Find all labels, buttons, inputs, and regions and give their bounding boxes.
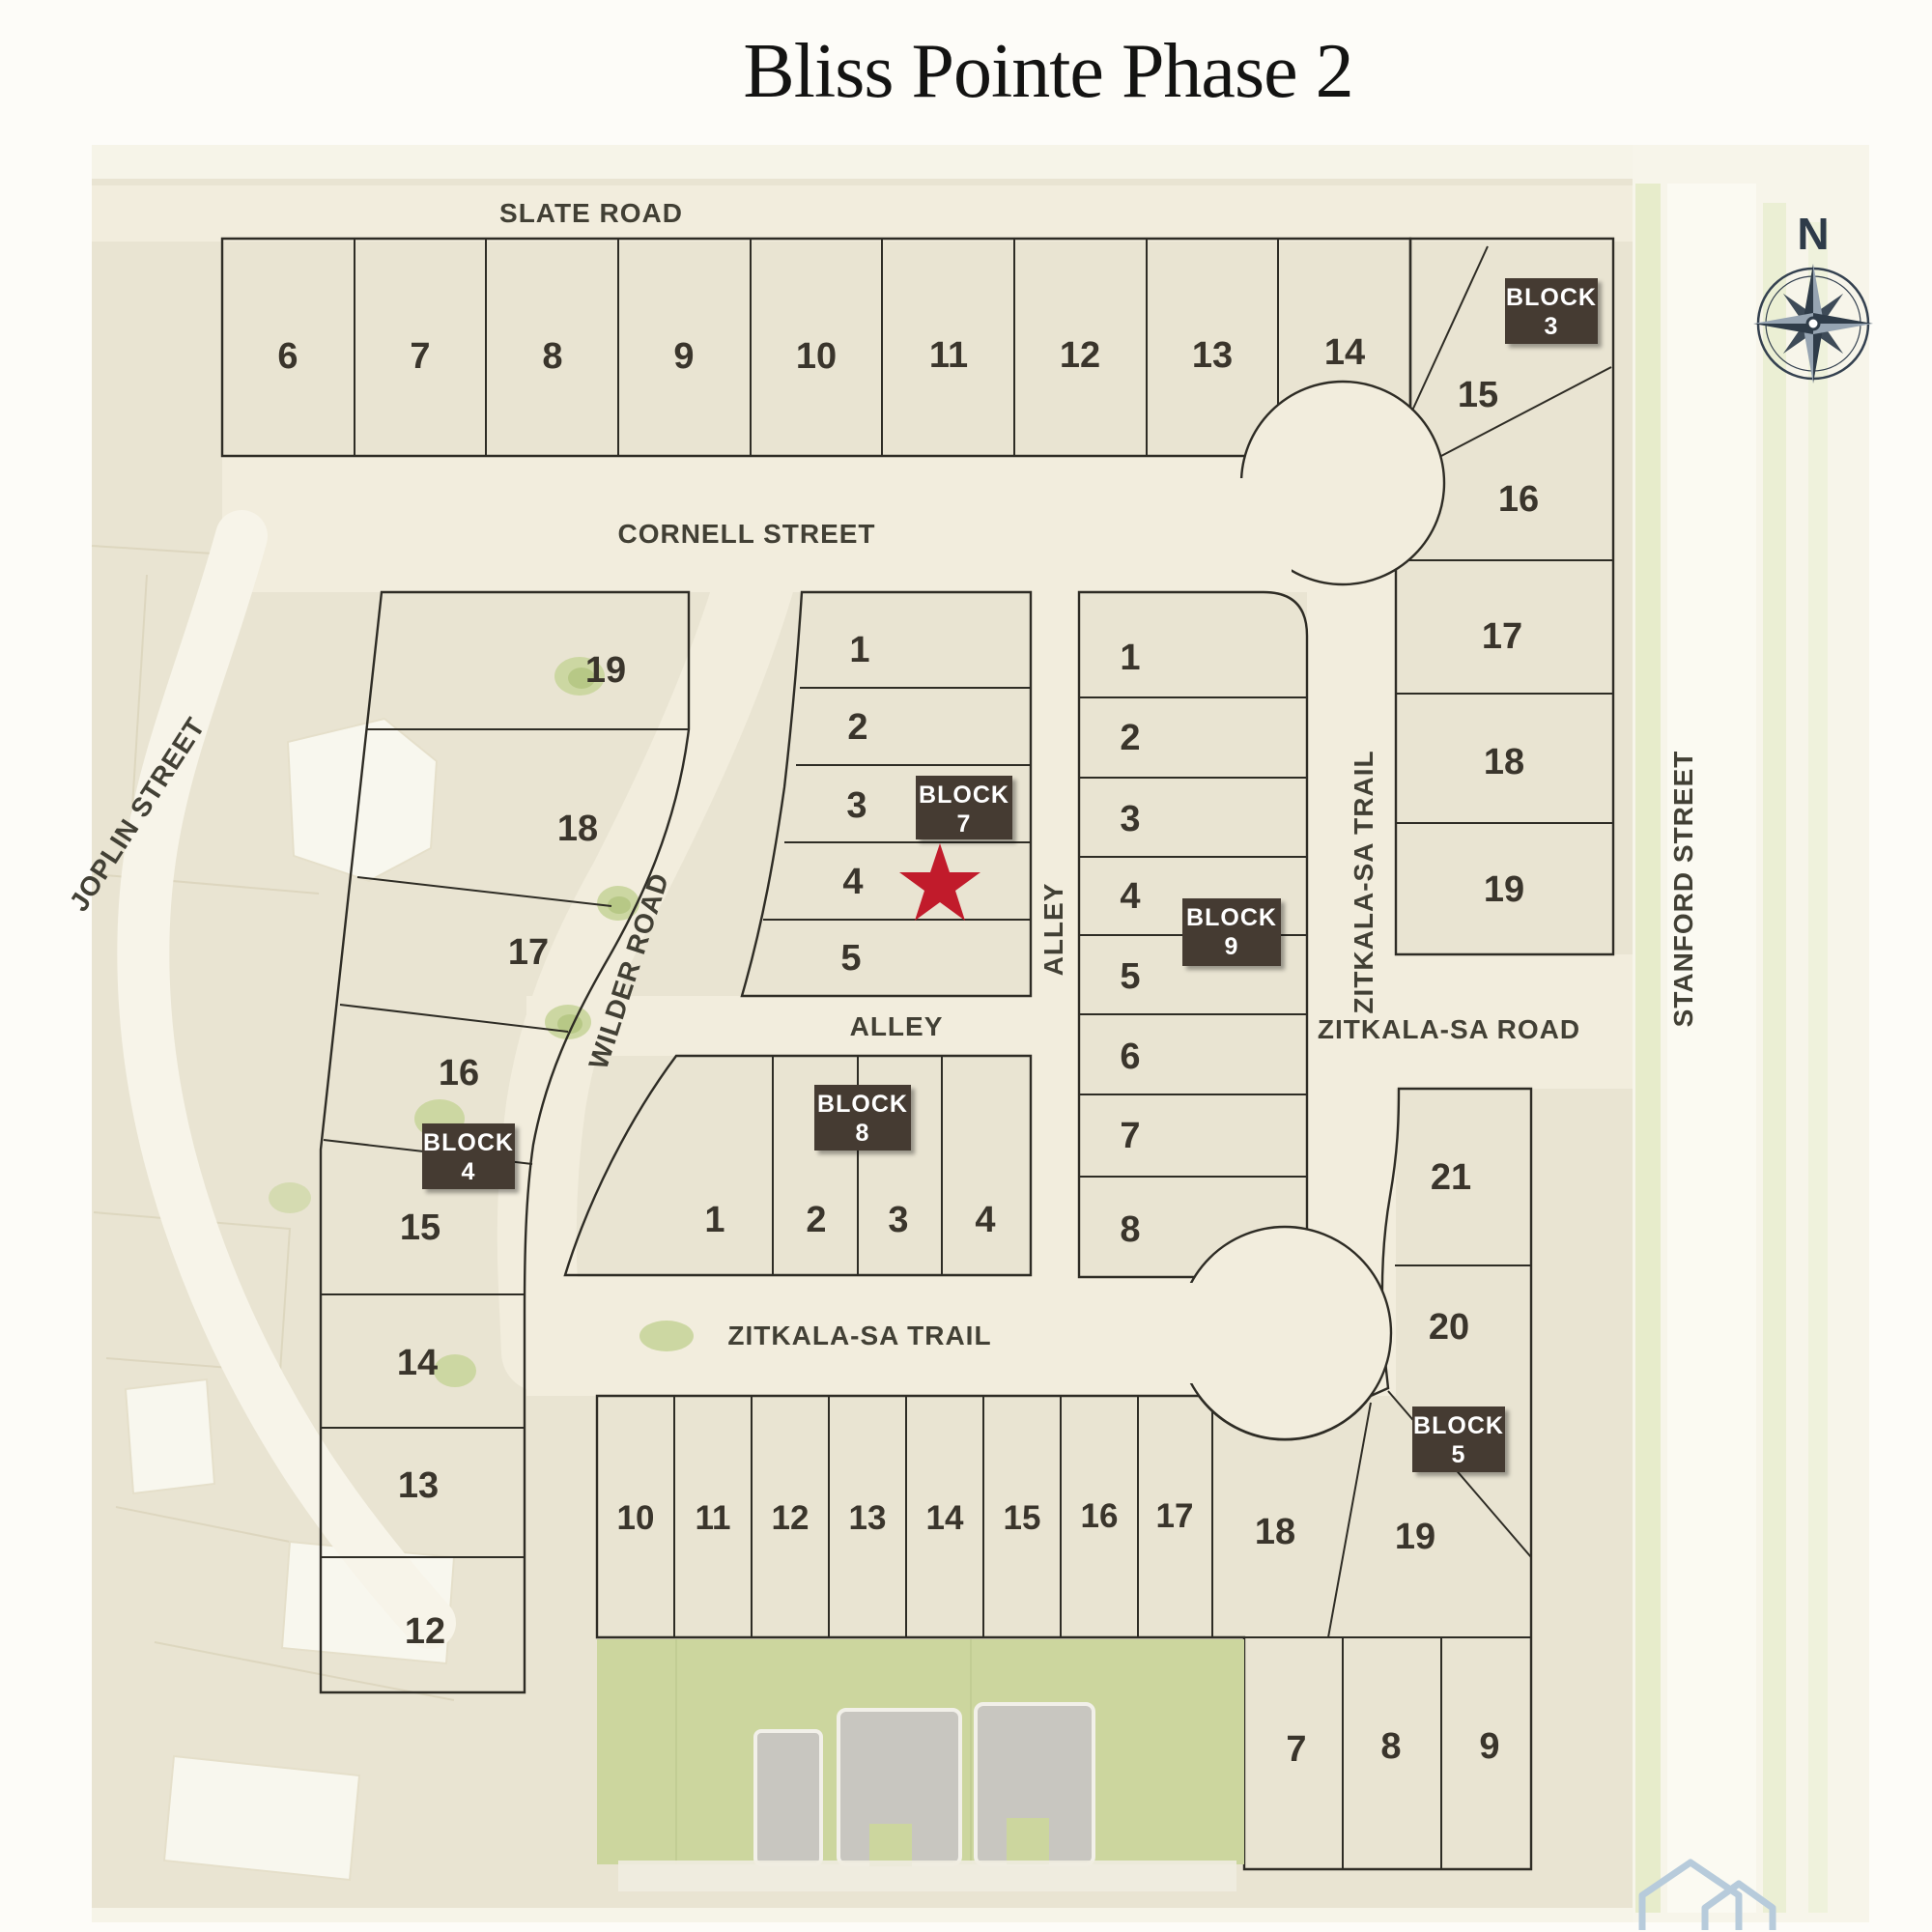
existing-buildings-south xyxy=(597,1639,1244,1891)
lot-number: 3 xyxy=(846,785,867,826)
lot-number: 16 xyxy=(1081,1497,1119,1535)
lot-number: 15 xyxy=(1458,375,1498,415)
lot-number: 18 xyxy=(557,809,598,849)
street-label-alley-horizontal: ALLEY xyxy=(850,1011,944,1041)
driveway-strip xyxy=(618,1861,1236,1891)
lot-number: 16 xyxy=(1498,479,1539,520)
lot-number: 14 xyxy=(397,1343,438,1383)
plat-map-page: 6 7 8 9 10 11 12 13 14 15 16 17 18 19 19… xyxy=(0,0,1932,1932)
lot-number: 6 xyxy=(277,336,298,377)
block-5-label: BLOCK 5 xyxy=(1412,1406,1505,1472)
lot-number: 16 xyxy=(439,1053,479,1094)
lot-number: 2 xyxy=(1120,718,1140,758)
street-label-zitkala-sa-trail-vertical: ZITKALA-SA TRAIL xyxy=(1349,750,1378,1013)
block-8-label: BLOCK 8 xyxy=(814,1085,911,1151)
lot-number: 17 xyxy=(1156,1497,1194,1535)
lot-number: 15 xyxy=(400,1207,440,1248)
lot-number: 11 xyxy=(696,1499,731,1537)
lot-number: 15 xyxy=(1004,1499,1041,1537)
block-9-label: BLOCK 9 xyxy=(1182,898,1281,966)
building-notch xyxy=(1007,1818,1049,1864)
block-label-word: BLOCK xyxy=(919,781,1009,809)
street-label-stanford-street: STANFORD STREET xyxy=(1668,751,1698,1028)
lot-number: 6 xyxy=(1120,1037,1140,1077)
block-label-word: BLOCK xyxy=(1186,904,1277,931)
lot-number: 19 xyxy=(1484,869,1524,910)
block-label-number: 4 xyxy=(462,1158,476,1185)
existing-house-footprint xyxy=(126,1379,214,1493)
block-label-number: 5 xyxy=(1452,1441,1466,1468)
lot-number: 9 xyxy=(673,336,694,377)
lot-number: 2 xyxy=(806,1200,826,1240)
lot-number: 18 xyxy=(1255,1512,1295,1552)
lot-number: 5 xyxy=(840,938,861,979)
lot-number: 18 xyxy=(1484,742,1524,782)
street-label-cornell-street: CORNELL STREET xyxy=(617,519,875,549)
lot-number: 4 xyxy=(1120,876,1140,917)
lot-number: 10 xyxy=(617,1499,655,1537)
existing-house-footprint xyxy=(164,1756,359,1880)
block-label-number: 7 xyxy=(957,810,972,838)
block-label-number: 3 xyxy=(1545,313,1559,340)
lot-number: 13 xyxy=(398,1465,439,1506)
lot-number: 13 xyxy=(1192,335,1233,376)
lot-number: 13 xyxy=(849,1499,887,1537)
lot-number: 14 xyxy=(1324,332,1365,373)
lot-number: 5 xyxy=(1120,956,1140,997)
lot-number: 4 xyxy=(975,1200,995,1240)
lot-number: 19 xyxy=(1395,1517,1435,1557)
building-notch xyxy=(869,1824,912,1866)
cul-de-sac-throat xyxy=(1177,1283,1225,1383)
plat-map-canvas: 6 7 8 9 10 11 12 13 14 15 16 17 18 19 19… xyxy=(0,0,1932,1932)
lot-number: 14 xyxy=(926,1499,964,1537)
lot-number: 7 xyxy=(410,336,430,377)
lot-number: 20 xyxy=(1429,1307,1469,1348)
road-slate xyxy=(92,185,1633,241)
block-label-number: 9 xyxy=(1225,933,1239,960)
block-7-label: BLOCK 7 xyxy=(916,776,1012,839)
street-label-slate-road: SLATE ROAD xyxy=(499,198,683,228)
page-title: Bliss Pointe Phase 2 xyxy=(743,29,1352,114)
block-3-label: BLOCK 3 xyxy=(1505,278,1598,344)
lot-number: 1 xyxy=(704,1200,724,1240)
lot-number: 4 xyxy=(842,862,863,902)
lot-number: 10 xyxy=(796,336,837,377)
lot-number: 8 xyxy=(542,336,562,377)
lot-number: 12 xyxy=(405,1611,445,1652)
lot-number: 12 xyxy=(1060,335,1100,376)
cul-de-sac-throat xyxy=(1238,478,1292,575)
lot-number: 3 xyxy=(1120,799,1140,839)
lot-number: 17 xyxy=(1482,616,1522,657)
lot-number: 2 xyxy=(847,707,867,748)
existing-house-footprint xyxy=(288,719,437,881)
lot-number: 1 xyxy=(849,630,869,670)
lot-number: 3 xyxy=(888,1200,908,1240)
lot-number: 8 xyxy=(1380,1726,1401,1767)
compass-north-label: N xyxy=(1797,209,1829,259)
lot-number: 19 xyxy=(585,650,626,691)
lot-number: 11 xyxy=(929,335,968,376)
lot-number: 12 xyxy=(772,1499,810,1537)
street-label-alley-vertical: ALLEY xyxy=(1038,883,1068,977)
lot-number: 1 xyxy=(1120,638,1140,678)
block-4-label: BLOCK 4 xyxy=(422,1123,515,1189)
street-label-zitkala-sa-road: ZITKALA-SA ROAD xyxy=(1318,1014,1580,1044)
lot-number: 17 xyxy=(508,932,549,973)
block-label-number: 8 xyxy=(856,1120,870,1147)
stanford-street-corridor xyxy=(1633,145,1869,1922)
block-label-word: BLOCK xyxy=(1506,284,1597,311)
lot-number: 7 xyxy=(1120,1116,1140,1156)
block-label-word: BLOCK xyxy=(423,1129,514,1156)
street-label-zitkala-sa-trail-horizontal: ZITKALA-SA TRAIL xyxy=(727,1321,991,1350)
block-label-word: BLOCK xyxy=(1413,1412,1504,1439)
block-label-word: BLOCK xyxy=(817,1091,908,1118)
lot-number: 8 xyxy=(1120,1209,1140,1250)
existing-building xyxy=(755,1731,821,1864)
lot-number: 7 xyxy=(1286,1729,1306,1770)
lot-number: 9 xyxy=(1479,1726,1499,1767)
lot-number: 21 xyxy=(1431,1157,1471,1198)
